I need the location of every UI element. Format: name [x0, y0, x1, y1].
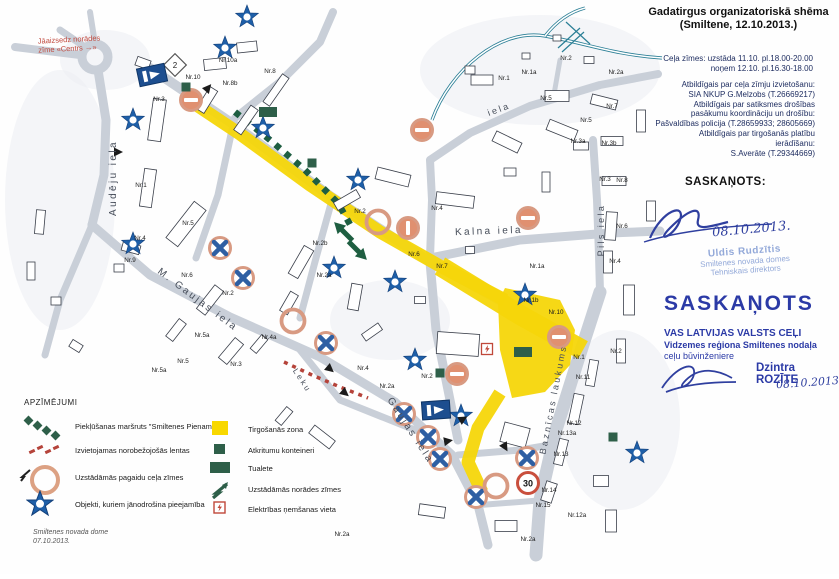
building-label: Nr.5a	[194, 332, 210, 339]
no-stopping-sign	[316, 333, 337, 354]
street-line	[235, 12, 333, 118]
street-label: Kalna iela	[455, 225, 523, 238]
building	[495, 521, 517, 532]
building-label: Nr.4	[357, 365, 369, 372]
building	[148, 98, 167, 141]
toilet	[259, 107, 277, 117]
no-entry-sign	[181, 90, 202, 111]
building-label: Nr.4	[431, 205, 443, 212]
building	[584, 57, 594, 64]
building-label: Nr.6	[181, 272, 193, 279]
building-label: Nr.2	[222, 290, 234, 297]
title-line1: Gadatirgus organizatoriskā shēma	[642, 6, 835, 19]
accessibility-object-star	[214, 36, 237, 58]
building-label: Nr.4	[134, 235, 146, 242]
direction-triangle	[443, 436, 453, 446]
building	[606, 510, 617, 532]
building-label: Nr.12a	[568, 512, 587, 519]
building-label: Nr.2a	[379, 383, 395, 390]
building-label: Nr.5	[580, 117, 592, 124]
building	[542, 172, 550, 192]
street-label: Leku	[291, 367, 313, 395]
building-label: Nr.13a	[558, 430, 577, 437]
waste-container	[182, 83, 191, 92]
no-entry-sign	[398, 218, 419, 239]
building	[51, 297, 61, 305]
stamp-dept: Vidzemes reģiona Smiltenes nodaļa	[664, 340, 817, 350]
shade-blob	[420, 15, 660, 125]
stamp-org-name: VAS LATVIJAS VALSTS CEĻI	[664, 328, 817, 339]
building	[114, 264, 124, 272]
title-line2: (Smiltene, 12.10.2013.)	[642, 19, 835, 32]
accessibility-object-star	[236, 5, 259, 27]
direction-sign	[421, 400, 450, 420]
route-arrow	[330, 218, 357, 245]
building-label: Nr.3	[230, 361, 242, 368]
resp-line: SIA NKUP G.Melzobs (T.26669217)	[655, 90, 815, 100]
waste-container	[436, 369, 445, 378]
building-label: Nr.8b	[222, 80, 238, 87]
building-label: Nr.7	[606, 103, 618, 110]
svg-text:2: 2	[173, 61, 178, 70]
building-label: Nr.7	[436, 263, 448, 270]
building-label: Nr.2	[610, 348, 622, 355]
building	[624, 285, 635, 315]
page-title: Gadatirgus organizatoriskā shēma (Smilte…	[642, 6, 835, 32]
building-label: Nr.6	[616, 223, 628, 230]
building-label: Nr.5	[177, 358, 189, 365]
building-label: Nr.1a	[529, 263, 545, 270]
building-label: Nr.12	[566, 420, 582, 427]
building-label: Nr.9	[124, 257, 136, 264]
building-label: Nr.1b	[523, 297, 539, 304]
speed-limit-30-sign: 30	[518, 473, 539, 494]
sign-times: Ceļa zīmes: uzstāda 11.10. pl.18.00-20.0…	[663, 54, 813, 74]
building-label: Nr.2	[421, 373, 433, 380]
building	[69, 339, 83, 352]
building	[436, 332, 479, 357]
building-label: Nr.4a	[261, 334, 277, 341]
waste-container	[609, 433, 618, 442]
route-arrow	[344, 237, 371, 264]
building-label: Nr.10	[185, 74, 201, 81]
building-label: Nr.1	[135, 182, 147, 189]
building-label: Nr.8	[264, 68, 276, 75]
building	[34, 210, 45, 235]
building-label: Nr.3	[153, 96, 165, 103]
no-entry-sign	[412, 120, 433, 141]
building-label: Nr.5	[182, 220, 194, 227]
building-label: Nr.2a	[334, 531, 350, 538]
building-label: Nr.4	[609, 258, 621, 265]
building-label: Nr.8	[616, 177, 628, 184]
building-label: Nr.2a	[316, 272, 332, 279]
resp-line: Pašvaldības policija (T.28659933; 286056…	[655, 119, 815, 129]
building-label: Nr.13	[553, 451, 569, 458]
building	[418, 504, 445, 519]
building-label: Nr.2a	[608, 69, 624, 76]
waste-container	[308, 159, 317, 168]
building-label: Nr.10	[548, 309, 564, 316]
building-label: Nr.2	[354, 208, 366, 215]
building	[471, 75, 493, 85]
map-note: Jāaizsedz norādes zīme «Centrs →»	[38, 34, 101, 54]
building-label: Nr.3b	[601, 140, 617, 147]
building	[27, 262, 35, 280]
building	[375, 167, 411, 187]
street-label: Pils iela	[596, 204, 606, 257]
building-label: Nr.3a	[570, 138, 586, 145]
building	[553, 35, 561, 41]
building	[309, 425, 336, 449]
accessibility-object-star	[347, 168, 370, 190]
building-label: Nr.2a	[520, 536, 536, 543]
building-label: Nr.14	[541, 487, 557, 494]
building-label: Nr.1	[498, 75, 510, 82]
building-label: Nr.1a	[521, 69, 537, 76]
building	[492, 131, 522, 153]
street-label: Audēju iela	[108, 140, 119, 216]
resp-line: Atbildīgais par ceļa zīmju izvietošanu:	[655, 80, 815, 90]
building	[166, 319, 187, 342]
resp-line: ierādīšanu:	[655, 139, 815, 149]
right-column: Gadatirgus organizatoriskā shēma (Smilte…	[640, 0, 839, 574]
building	[466, 247, 475, 254]
stamp-title: SASKAŅOTS	[664, 292, 817, 316]
building	[237, 41, 258, 53]
no-entry-sign	[447, 364, 468, 385]
street-label: M. Gaujas iela	[155, 266, 240, 333]
electric-point	[482, 344, 493, 355]
signature-rozite	[656, 358, 746, 400]
toilet	[514, 347, 532, 357]
building-label: Nr.10a	[219, 57, 238, 64]
building-label: Nr.2b	[312, 240, 328, 247]
resp-line: pasākumu koordināciju un drošību:	[655, 109, 815, 119]
building-label: Nr.3	[599, 176, 611, 183]
building	[465, 66, 475, 74]
building-label: Nr.11	[576, 374, 591, 381]
building-label: Nr.2	[560, 55, 572, 62]
resp-line: S.Averāte (T.29344669)	[655, 149, 815, 159]
building-label: Nr.6	[408, 251, 420, 258]
svg-text:30: 30	[523, 479, 533, 489]
accessibility-object-star	[122, 108, 145, 130]
building-label: Nr.15	[535, 502, 551, 509]
building	[415, 297, 426, 304]
stamp-latvijas-valsts-celi: SASKAŅOTS VAS LATVIJAS VALSTS CEĻI Vidze…	[664, 292, 817, 361]
no-stopping-sign	[517, 448, 538, 469]
building-label: Nr.5a	[151, 367, 167, 374]
building	[504, 168, 516, 176]
building	[594, 476, 609, 487]
sign-times-line2: noņem 12.10. pl.16.30-18.00	[663, 64, 813, 74]
priority-road-sign: 2	[164, 54, 187, 77]
street-labels: Audēju ielaM. Gaujas ielaGaujas ielaKaln…	[108, 100, 606, 465]
responsibles: Atbildīgais par ceļa zīmju izvietošanu: …	[655, 80, 815, 158]
building-label: Nr.5	[540, 95, 552, 102]
building	[522, 53, 530, 59]
building-label: Nr.1	[573, 354, 585, 361]
sign-times-line1: Ceļa zīmes: uzstāda 11.10. pl.18.00-20.0…	[663, 54, 813, 64]
scanned-scheme-page: 302Audēju ielaM. Gaujas ielaGaujas ielaK…	[0, 0, 839, 574]
resp-line: Atbildīgais par satiksmes drošības	[655, 100, 815, 110]
resp-line: Atbildīgais par tirgošanās platību	[655, 129, 815, 139]
temporary-sign-ring	[485, 475, 508, 498]
no-stopping-sign	[210, 238, 231, 259]
trade-zone-band	[468, 393, 500, 492]
no-stopping-sign	[233, 268, 254, 289]
building	[275, 407, 293, 426]
approval-heading: SASKAŅOTS:	[685, 176, 766, 188]
